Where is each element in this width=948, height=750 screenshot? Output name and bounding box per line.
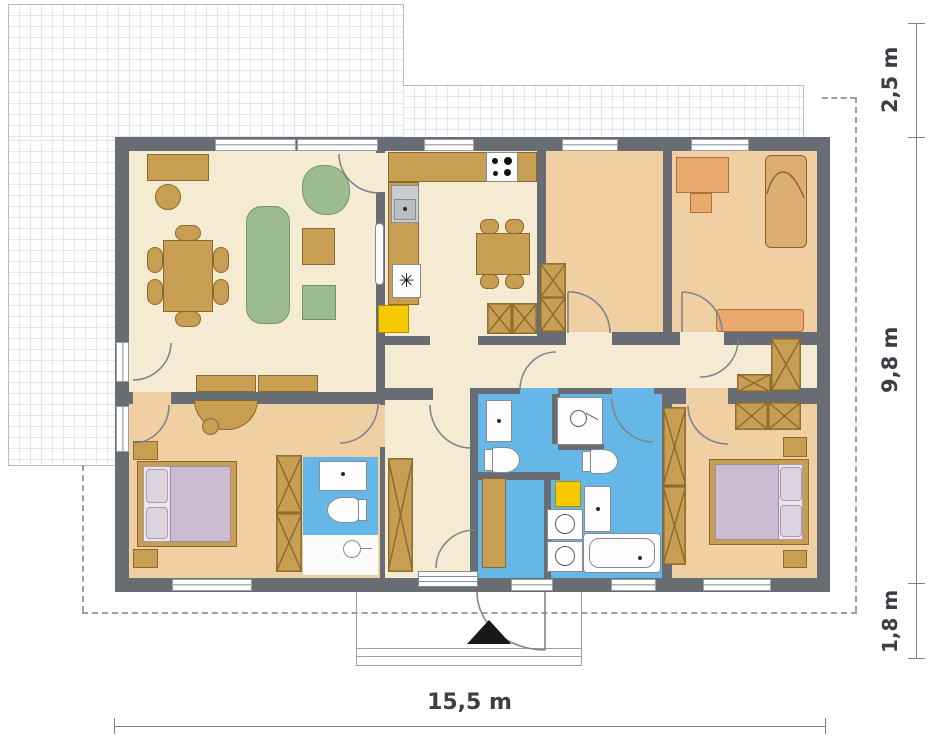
wardrobe-icon (735, 402, 768, 430)
toilet-icon (490, 447, 520, 473)
window (116, 342, 129, 382)
door-opening (133, 392, 171, 404)
chair-icon (505, 274, 524, 289)
dimension-tick (908, 658, 925, 659)
shower-handle (360, 548, 372, 549)
dimension-tick (114, 718, 115, 734)
freezer-icon: ✳ (392, 264, 421, 298)
dimension-line-bottom (114, 726, 825, 727)
window (215, 139, 296, 151)
dimension-label-depth-bottom: 1,8 m (878, 585, 902, 657)
chair-icon (480, 219, 499, 234)
cabinet-icon (487, 303, 512, 334)
freezer-glyph: ✳ (399, 270, 415, 292)
chair-icon (147, 247, 163, 273)
cabinet-icon (512, 303, 537, 334)
toilet-icon (588, 449, 618, 474)
toilet-icon (327, 497, 359, 523)
terrace-grid (8, 140, 115, 465)
lot-boundary-dashed (82, 465, 84, 612)
porch-step (356, 648, 582, 649)
door-bathroom (612, 398, 654, 443)
ottoman-icon (302, 285, 336, 320)
bath-ensuite-shower-floor (303, 535, 378, 575)
terrace-grid (8, 4, 403, 140)
chair-icon (480, 274, 499, 289)
desk-icon (676, 157, 729, 193)
couch-icon (716, 309, 804, 332)
door-wc (520, 352, 557, 391)
dimension-line-right (916, 23, 917, 658)
door-opening (430, 336, 478, 345)
chair-icon (505, 219, 524, 234)
tv-bench-icon (258, 375, 318, 392)
door-bedroom-right (688, 406, 729, 445)
wardrobe-icon (388, 458, 413, 572)
dryer-drum-icon (555, 546, 575, 566)
dimension-tick (825, 718, 826, 734)
nightstand-icon (783, 550, 807, 568)
window (611, 579, 656, 591)
kitchen-table-icon (476, 233, 530, 275)
lot-boundary-dashed (822, 97, 856, 99)
chair-icon (175, 225, 201, 241)
washer-drum-icon (555, 514, 575, 534)
pocket-door-icon (375, 223, 384, 285)
faucet-dot (497, 419, 501, 423)
chair-icon (147, 279, 163, 305)
burner-icon (504, 169, 511, 176)
door-opening (433, 388, 470, 400)
roof-overhang-outline (803, 85, 804, 140)
wardrobe-icon (737, 374, 771, 392)
wardrobe-icon (540, 263, 566, 298)
shower-head-icon (570, 410, 587, 427)
bed-blanket-fold (766, 156, 806, 216)
toilet-tank (582, 451, 591, 472)
boiler-icon (378, 305, 409, 333)
burner-icon (492, 158, 498, 164)
toilet-tank (484, 449, 493, 471)
coffee-table-icon (302, 228, 335, 265)
burner-icon (493, 171, 498, 176)
entrance-arrow-icon (467, 620, 511, 644)
chair-icon (175, 311, 201, 327)
sofa-icon (246, 206, 290, 324)
window (511, 579, 553, 591)
window (703, 579, 771, 591)
window (172, 579, 252, 591)
dimension-label-width: 15,5 m (114, 690, 825, 715)
pillow-icon (780, 467, 802, 501)
door-corridor-right (700, 340, 739, 378)
dimension-tick (908, 137, 925, 138)
door-vestibule (430, 400, 472, 449)
burner-icon (504, 157, 512, 165)
chair-icon (213, 247, 229, 273)
side-table-icon (155, 184, 181, 210)
doormat-icon (418, 571, 478, 587)
terrace-outline (403, 4, 404, 85)
bathtub-inner (589, 538, 655, 568)
window (424, 139, 474, 151)
nightstand-icon (783, 437, 807, 457)
roof-overhang-outline (403, 85, 803, 86)
dimension-tick (908, 23, 925, 24)
hall-cabinet-icon (482, 478, 506, 568)
drain-dot (638, 556, 642, 560)
shower-drain-icon (343, 540, 361, 558)
wardrobe-icon (768, 402, 801, 430)
blanket-icon (715, 464, 779, 540)
tv-bench-icon (196, 375, 256, 392)
wardrobe-icon (771, 338, 801, 391)
terrace-outline (8, 4, 9, 465)
desk-chair-icon (202, 418, 219, 435)
wardrobe-icon (540, 297, 566, 332)
window (297, 139, 378, 151)
pillow-icon (780, 505, 802, 537)
faucet-dot (596, 507, 600, 511)
wardrobe-icon (276, 455, 302, 513)
wardrobe-icon (663, 486, 686, 565)
dimension-label-depth-mid: 9,8 m (878, 300, 902, 420)
faucet-dot (403, 207, 407, 211)
terrace-grid (403, 85, 803, 140)
door-opening (612, 388, 654, 394)
door-hall-inner (436, 530, 476, 569)
wardrobe-icon (663, 407, 686, 486)
boiler-icon (555, 481, 581, 507)
dining-table-icon (163, 240, 213, 312)
door-ensuite-bath (340, 403, 379, 444)
door-living-kitchen (338, 153, 380, 194)
door-opening (380, 405, 385, 447)
toilet-tank (358, 499, 367, 521)
lot-boundary-dashed (855, 97, 857, 612)
door-living-hall (133, 342, 173, 382)
window (116, 406, 129, 452)
terrace-outline (8, 4, 403, 5)
door-bedroom-left (133, 405, 170, 444)
chair-icon (213, 279, 229, 305)
floor-plan: ✳ (0, 0, 948, 750)
window (562, 139, 618, 151)
door-middle-room (568, 292, 611, 334)
window (691, 139, 749, 151)
blanket-icon (170, 466, 231, 542)
wardrobe-icon (276, 513, 302, 572)
porch-step (356, 656, 582, 657)
terrace-outline (8, 465, 115, 466)
nightstand-icon (133, 549, 158, 568)
faucet-dot (341, 472, 345, 476)
stove-icon (486, 152, 518, 182)
door-opening (686, 388, 728, 404)
pillow-icon (146, 507, 168, 539)
dimension-tick (908, 583, 925, 584)
pillow-icon (146, 469, 168, 503)
dimension-label-depth-top: 2,5 m (878, 30, 902, 130)
sink-icon (319, 461, 367, 491)
desk-chair-icon (690, 193, 712, 213)
door-study (682, 292, 723, 333)
sideboard-icon (147, 154, 209, 181)
